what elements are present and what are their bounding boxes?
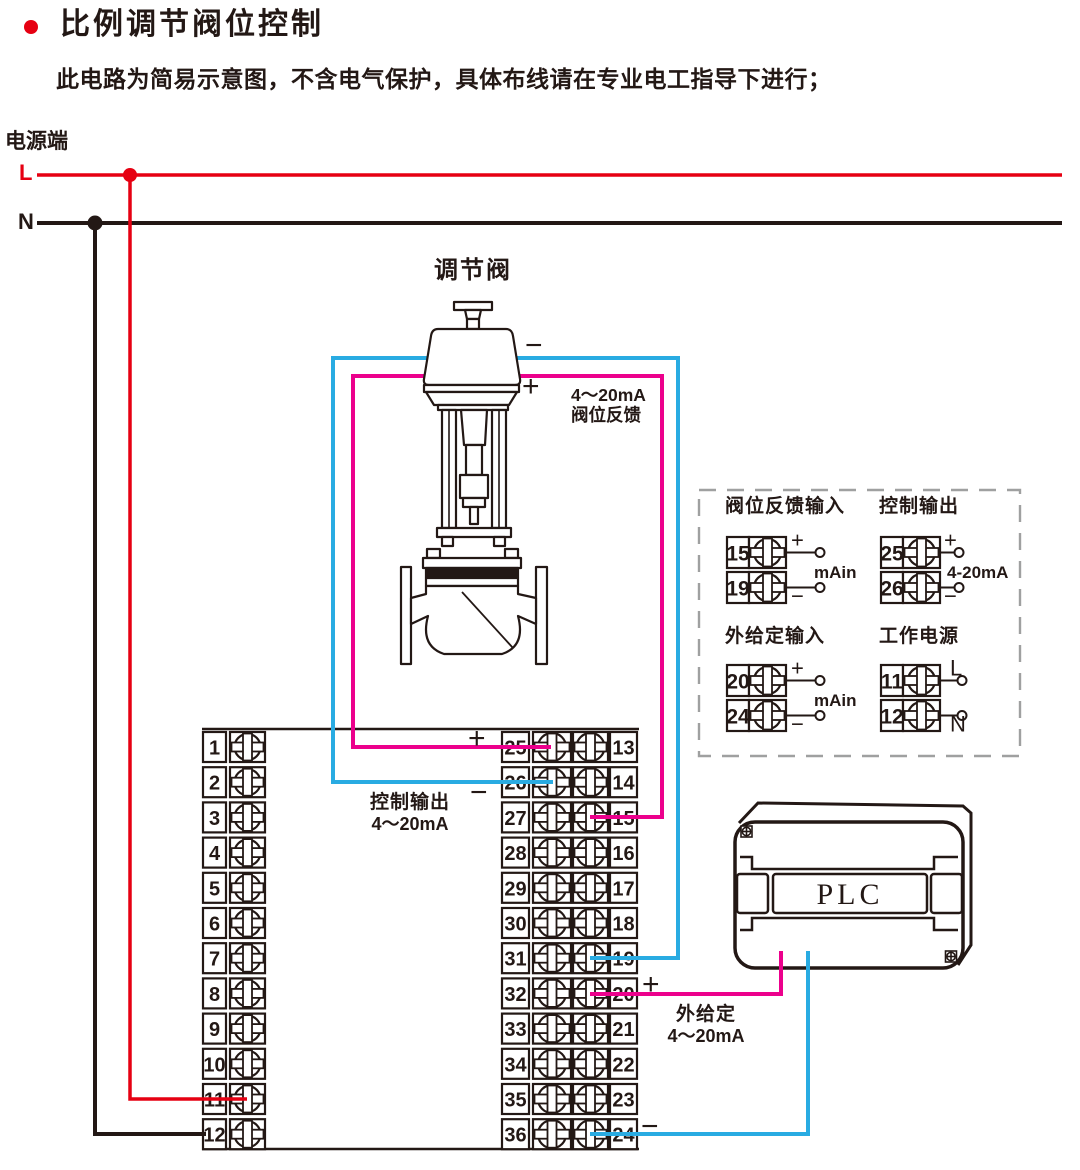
label: 36 — [504, 1125, 526, 1147]
io-group: 20+24−mAin — [726, 656, 856, 737]
control-output-line1: 控制输出 — [362, 792, 458, 814]
label: + — [791, 656, 804, 681]
valve-flange-left — [401, 567, 411, 664]
control-output-minus-sign: − — [470, 776, 488, 811]
label: 2 — [209, 773, 220, 795]
wire-end-circle — [816, 711, 825, 720]
label: 25 — [880, 543, 904, 566]
page-title: 比例调节阀位控制 — [60, 8, 324, 43]
valve-feedback-line1: 4～20mA — [571, 385, 646, 405]
diagram-canvas: 123456789101112 251326142715281629173018… — [0, 0, 1080, 1170]
control-output-line2: 4～20mA — [362, 814, 458, 835]
page-subtitle: 此电路为简易示意图，不含电气保护，具体布线请在专业电工指导下进行； — [56, 66, 832, 92]
control-output-plus-sign: + — [468, 722, 486, 757]
valve-handle — [454, 302, 492, 310]
setpoint-label: 外给定 4～20mA — [660, 1004, 752, 1047]
io-group: 15+19−mAin — [726, 528, 856, 609]
terminal-row: 5 — [203, 873, 265, 903]
label: 17 — [612, 878, 634, 900]
label: L — [950, 656, 962, 681]
label: 33 — [504, 1019, 526, 1041]
terminal-row: 3422 — [502, 1049, 637, 1079]
terminal-row: 1 — [203, 732, 265, 762]
terminal-row: 4 — [203, 838, 265, 868]
label: − — [944, 584, 957, 609]
label: 1 — [209, 738, 220, 760]
label: 5 — [209, 878, 220, 900]
wire-end-circle — [816, 583, 825, 592]
label: 15 — [726, 543, 750, 566]
label: 20 — [726, 671, 749, 694]
valve-flange-right — [536, 567, 547, 664]
label: 23 — [612, 1090, 634, 1112]
label: 12 — [203, 1125, 225, 1147]
io-title-working-power: 工作电源 — [879, 626, 959, 648]
label: 19 — [726, 578, 749, 601]
label: 8 — [209, 984, 220, 1006]
setpoint-minus-sign: − — [641, 1110, 659, 1145]
label: 4 — [209, 843, 221, 865]
terminal-row: 2 — [203, 767, 265, 797]
label: 13 — [612, 738, 634, 760]
label: 7 — [209, 949, 220, 971]
terminal-row: 3 — [203, 802, 265, 832]
setpoint-line1: 外给定 — [660, 1004, 752, 1026]
label: + — [791, 528, 804, 553]
terminal-row: 2816 — [502, 838, 637, 868]
terminal-row: 6 — [203, 908, 265, 938]
label: 32 — [504, 984, 526, 1006]
label: 11 — [881, 671, 904, 694]
io-group: 25+26−4-20mA — [880, 528, 1008, 609]
terminal-row: 2917 — [502, 873, 637, 903]
label: mAin — [814, 691, 857, 710]
label: + — [944, 528, 957, 553]
terminal-row: 10 — [203, 1049, 265, 1079]
label: 28 — [504, 843, 526, 865]
control-output-label: 控制输出 4～20mA — [362, 792, 458, 835]
junction-dot-neutral — [88, 216, 103, 231]
valve-actuator — [424, 329, 520, 385]
valve-minus-sign: − — [525, 329, 543, 364]
terminal-block-left: 123456789101112 — [203, 732, 265, 1149]
junction-dot-live — [123, 168, 137, 182]
io-title-feedback-input: 阀位反馈输入 — [725, 496, 845, 518]
bullet-icon — [24, 20, 38, 34]
label: 27 — [504, 808, 526, 830]
label: 22 — [612, 1054, 634, 1076]
setpoint-plus-sign: + — [642, 968, 660, 1003]
terminal-row: 3523 — [502, 1084, 637, 1114]
label: 6 — [209, 914, 220, 936]
plc-label: PLC — [773, 876, 927, 914]
label: 9 — [209, 1019, 220, 1041]
label: 31 — [504, 949, 526, 971]
label: 34 — [504, 1054, 527, 1076]
wire-end-circle — [816, 676, 825, 685]
label: 21 — [612, 1019, 634, 1041]
line-n-label: N — [18, 209, 34, 234]
label: N — [950, 712, 966, 737]
label: 4-20mA — [947, 563, 1008, 582]
line-l-label: L — [19, 160, 32, 185]
label: 16 — [612, 843, 634, 865]
label: − — [791, 584, 804, 609]
label: 26 — [880, 578, 903, 601]
label: mAin — [814, 563, 857, 582]
terminal-row: 3321 — [502, 1014, 637, 1044]
setpoint-line2: 4～20mA — [660, 1026, 752, 1047]
valve-label: 调节阀 — [418, 257, 528, 285]
label: 18 — [612, 914, 634, 936]
terminal-row: 9 — [203, 1014, 265, 1044]
terminal-row: 12 — [203, 1119, 265, 1149]
valve-feedback-line2: 阀位反馈 — [571, 405, 646, 425]
label: 14 — [612, 773, 635, 795]
valve-stem — [461, 410, 487, 445]
label: 3 — [209, 808, 220, 830]
power-source-label: 电源端 — [5, 130, 68, 154]
corner-screw-icon — [946, 951, 957, 962]
corner-screw-icon — [741, 826, 752, 837]
io-title-control-output: 控制输出 — [879, 496, 959, 518]
label: 10 — [203, 1054, 225, 1076]
wiring-diagram-page: 123456789101112 251326142715281629173018… — [0, 0, 1080, 1170]
terminal-row: 8 — [203, 978, 265, 1008]
valve-plus-sign: + — [522, 370, 540, 405]
label: 30 — [504, 914, 526, 936]
terminal-block-right: 2513261427152816291730183119322033213422… — [502, 732, 637, 1149]
valve-feedback-label: 4～20mA 阀位反馈 — [571, 385, 646, 425]
terminal-row: 3018 — [502, 908, 637, 938]
io-title-external-setpoint: 外给定输入 — [725, 626, 825, 648]
label: 24 — [726, 706, 750, 729]
label: 12 — [880, 706, 903, 729]
label: 29 — [504, 878, 526, 900]
terminal-row: 7 — [203, 943, 265, 973]
label: − — [791, 712, 804, 737]
label: 35 — [504, 1090, 526, 1112]
wire-end-circle — [816, 548, 825, 557]
io-group: 11L12N — [880, 656, 966, 737]
valve-body — [411, 586, 536, 654]
